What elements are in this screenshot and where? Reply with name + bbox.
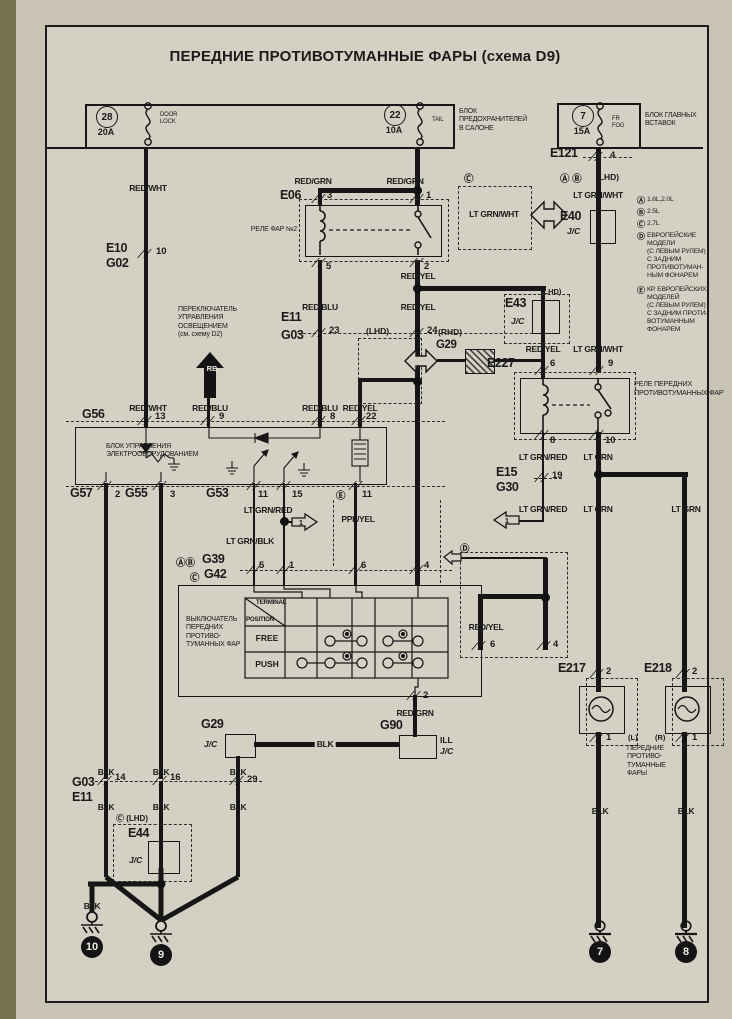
- legend-item-b: Ⓑ 2.5L: [637, 208, 709, 217]
- connector-id-g90: G90: [380, 718, 402, 732]
- main-fusebox-bottom: [557, 147, 703, 149]
- pin-e227-10: 10: [605, 435, 616, 446]
- wire-label-red-grn-3: RED/GRN: [396, 708, 433, 718]
- ground-convergence: [78, 868, 268, 978]
- wiring-diagram-page: ПЕРЕДНИЕ ПРОТИВОТУМАННЫЕ ФАРЫ (схема D9)…: [0, 0, 732, 1019]
- connector-id-g39: G39: [202, 552, 224, 566]
- fuse-22-number: 22: [384, 104, 406, 126]
- fog-lamp-left-bulb-icon: [579, 686, 623, 732]
- connector-id-g57: G57: [70, 486, 92, 500]
- rhd-double-arrow-icon: [404, 346, 438, 376]
- pin-g42-1: 1: [289, 560, 294, 571]
- connector-id-e10: E10: [106, 241, 127, 255]
- relay-e06-internals: [305, 205, 440, 255]
- wire-label-red-yel-1: RED/YEL: [401, 271, 436, 281]
- connector-id-g29-mid: G29: [436, 339, 457, 351]
- pin-g55-3: 3: [170, 489, 175, 500]
- tag-lhd-mid: (LHD): [366, 326, 389, 336]
- tag-left-lamp: (L): [628, 733, 638, 742]
- switch-row-free: FREE: [249, 633, 285, 643]
- light-switch-arrow-icon: [196, 352, 224, 398]
- wire-blk-lamp-r: [682, 732, 687, 928]
- cabin-fusebox-left: [85, 104, 87, 148]
- fog-switch-label: ВЫКЛЮЧАТЕЛЬ ПЕРЕДНИХ ПРОТИВО- ТУМАННЫХ Ф…: [186, 616, 240, 650]
- junction-lt-grn-red: [280, 517, 289, 526]
- connector-id-g03-bottom: G03: [72, 775, 94, 789]
- fog-lamp-right-bulb-icon: [665, 686, 709, 732]
- tag-lhd-e43: (LHD): [541, 287, 561, 296]
- ground-7-number: 7: [589, 941, 611, 963]
- main-fusebox-label: БЛОК ГЛАВНЫХ ВСТАВОК: [645, 112, 697, 129]
- wire-label-blk-2: BLK: [153, 767, 170, 777]
- cabin-fusebox-bottom: [47, 147, 455, 149]
- wire-label-lt-grn-red-1: LT GRN/RED: [244, 505, 292, 515]
- g90-jc-box: [399, 735, 437, 759]
- wire-label-lt-grn-red-3: LT GRN/RED: [519, 504, 567, 514]
- fuse-7-circuit: FR FOG: [612, 116, 624, 130]
- tag-d-box: Ⓓ: [460, 541, 470, 555]
- connector-id-g55: G55: [125, 486, 147, 500]
- wire-lt-grn-tee: [596, 472, 688, 477]
- connector-id-e15: E15: [496, 465, 517, 479]
- pin-e15-19: 19: [552, 470, 563, 481]
- connector-id-e227: E227: [487, 356, 515, 370]
- legend-key-b: Ⓑ: [637, 208, 645, 217]
- pin-e227-9: 9: [608, 358, 613, 369]
- fuse-28-amp: 20A: [93, 127, 119, 137]
- pin-g53-15: 15: [292, 489, 303, 500]
- wire-label-blk-4: BLK: [98, 802, 115, 812]
- junction-red-yel-e43: [413, 284, 422, 293]
- wire-lt-grn-red-corner: [516, 520, 543, 522]
- switch-table-terminal: TERMINAL: [256, 599, 286, 606]
- junction-lt-grn-tee: [594, 470, 603, 479]
- pin-g29-29: 29: [247, 774, 258, 785]
- pin-e218-2: 2: [692, 666, 697, 677]
- tag-c-lhd-e44: Ⓒ (LHD): [116, 813, 148, 824]
- wire-label-blk-8: BLK: [84, 901, 101, 911]
- wire-label-lt-grn-3: LT GRN: [671, 504, 700, 514]
- light-switch-arrow-code: RB: [202, 364, 222, 373]
- wire-label-red-wht-1: RED/WHT: [129, 183, 167, 193]
- pin-g03-14: 14: [115, 772, 126, 783]
- connector-line-g56-top: [66, 421, 445, 422]
- pin-dbox-6: 6: [490, 639, 495, 650]
- pin-g42-5: 5: [259, 560, 264, 571]
- connector-id-g42: G42: [204, 567, 226, 581]
- cabin-fusebox-right: [453, 104, 455, 148]
- wire-label-red-grn-2: RED/GRN: [386, 176, 423, 186]
- junction-red-yel-lhd: [413, 377, 422, 386]
- wire-label-blk-6: BLK: [230, 802, 247, 812]
- diagram-title: ПЕРЕДНИЕ ПРОТИВОТУМАННЫЕ ФАРЫ (схема D9): [90, 48, 640, 65]
- wire-blk-g57: [104, 483, 108, 779]
- connector-line-g39-g42: [240, 570, 452, 571]
- wire-label-lt-grn-red-2: LT GRN/RED: [519, 452, 567, 462]
- link-arrow-right-number: 1: [294, 518, 308, 527]
- pin-e121-4: 4: [610, 150, 615, 161]
- legend-item-d: Ⓓ ЕВРОПЕЙСКИЕ МОДЕЛИ (С ЛЕВЫМ РУЛЕМ) С З…: [637, 232, 709, 280]
- fuse-22-circuit: TAIL: [432, 117, 443, 124]
- pin-dbox-4: 4: [553, 639, 558, 650]
- wire-blk-g55: [159, 483, 163, 779]
- pin-e06-1: 1: [426, 190, 431, 201]
- legend-item-e: Ⓔ КР. ЕВРОПЕЙСКИХ МОДЕЛЕЙ (С ЛЕВЫМ РУЛЕМ…: [637, 286, 709, 334]
- connector-id-g56: G56: [82, 407, 104, 421]
- wire-label-lt-grn-2: LT GRN: [583, 504, 612, 514]
- relay-e227-internals: [520, 378, 628, 432]
- pin-e-11: 11: [362, 489, 372, 500]
- wire-label-lt-grn-wht-3: LT GRN/WHT: [573, 344, 623, 354]
- fuse-22-amp: 10A: [381, 125, 407, 135]
- fuse-28-number: 28: [96, 106, 118, 128]
- wire-label-lt-grn-wht-2: LT GRN/WHT: [469, 209, 519, 219]
- connector-id-g29-jc: G29: [201, 717, 223, 731]
- tag-jc-e44: J/C: [129, 855, 142, 865]
- connector-id-e218: E218: [644, 661, 672, 675]
- connector-id-e11: E11: [281, 310, 301, 324]
- wire-label-red-yel-2: RED/YEL: [401, 302, 436, 312]
- connector-id-g02: G02: [106, 256, 128, 270]
- wire-label-red-yel-4: RED/YEL: [526, 344, 561, 354]
- pin-e06-3: 3: [327, 190, 332, 201]
- legend-key-a: Ⓐ: [637, 196, 645, 205]
- tag-jc-g90: J/C: [440, 746, 453, 756]
- pin-e217-1: 1: [606, 732, 611, 743]
- wire-label-red-blu-1: RED/BLU: [302, 302, 338, 312]
- pin-e227-6: 6: [550, 358, 555, 369]
- scan-page-edge: [0, 0, 16, 1019]
- wire-label-blk-10: BLK: [678, 806, 695, 816]
- tag-right-lamp: (R): [655, 733, 665, 742]
- pin-e11-24: 24: [427, 325, 438, 336]
- junction-d-box: [541, 593, 550, 602]
- connector-id-g53: G53: [206, 486, 228, 500]
- wire-label-lt-grn-wht-1: LT GRN/WHT: [573, 190, 623, 200]
- light-switch-note: ПЕРЕКЛЮЧАТЕЛЬ УПРАВЛЕНИЯ ОСВЕЩЕНИЕМ (см.…: [178, 306, 237, 340]
- fuse-7-icon: [591, 100, 609, 148]
- wire-label-blk-7: BLK: [315, 739, 336, 749]
- pin-e227-8: 8: [550, 435, 555, 446]
- legend-key-d: Ⓓ: [637, 232, 645, 241]
- ground-8-number: 8: [675, 941, 697, 963]
- connector-id-e43: E43: [505, 296, 526, 310]
- cabin-fusebox-label: БЛОК ПРЕДОХРАНИТЕЛЕЙ В САЛОНЕ: [459, 108, 527, 133]
- wire-red-yel-to-e43: [418, 286, 546, 291]
- wire-label-lt-grn-1: LT GRN: [583, 452, 612, 462]
- wire-label-lt-grn-blk: LT GRN/BLK: [226, 536, 274, 546]
- pin-e10-10: 10: [156, 246, 167, 257]
- connector-id-e40: E40: [560, 209, 581, 223]
- pin-g56-22: 22: [366, 411, 377, 422]
- variant-dash-e-left: [333, 500, 334, 566]
- pin-e217-2: 2: [606, 666, 611, 677]
- wire-label-ppl-yel: PPL/YEL: [341, 514, 374, 524]
- pin-e06-2: 2: [424, 261, 429, 272]
- tag-c-box: Ⓒ: [464, 171, 474, 185]
- pin-g56-9: 9: [219, 411, 224, 422]
- tag-rhd: (RHD): [438, 327, 462, 337]
- e40-jc-box: [590, 210, 616, 244]
- wire-red-grn-branch: [318, 188, 420, 193]
- link-arrow-left-number: 1: [500, 516, 514, 525]
- legend-item-a: Ⓐ 1.6L,2.0L: [637, 196, 709, 205]
- wire-rhd-left: [437, 359, 465, 362]
- pin-g03-16: 16: [170, 772, 181, 783]
- legend-text-d: ЕВРОПЕЙСКИЕ МОДЕЛИ (С ЛЕВЫМ РУЛЕМ) С ЗАД…: [647, 232, 706, 280]
- switch-table-position: POSITION: [246, 616, 274, 623]
- variant-dash-d-link: [440, 500, 441, 583]
- tag-jc-e43: J/C: [511, 316, 524, 326]
- legend-text-b: 2.5L: [647, 208, 659, 216]
- connector-id-e217: E217: [558, 661, 586, 675]
- tag-ab-e121: Ⓐ Ⓑ: [560, 171, 582, 185]
- relay-e227-name: РЕЛЕ ПЕРЕДНИХ ПРОТИВОТУМАННЫХ ФАР: [634, 380, 729, 397]
- g29-jc-box: [225, 734, 256, 758]
- tag-jc-g29: J/C: [204, 739, 217, 749]
- connector-id-g03-top: G03: [281, 328, 303, 342]
- pin-g53-11: 11: [258, 489, 268, 500]
- fuse-28-circuit: DOOR LOCK: [160, 112, 177, 126]
- ground-9-number: 9: [150, 944, 172, 966]
- connector-id-e44: E44: [128, 826, 149, 840]
- legend-key-c: Ⓒ: [637, 220, 645, 229]
- pin-e06-5: 5: [326, 261, 331, 272]
- e43-jc-box: [532, 300, 560, 334]
- control-unit-label: БЛОК УПРАВЛЕНИЯ ЭЛЕКТРООБОРУДОВАНИЕМ: [106, 443, 198, 460]
- pin-e218-1: 1: [692, 732, 697, 743]
- main-fusebox-left: [557, 103, 559, 147]
- legend-text-a: 1.6L,2.0L: [647, 196, 674, 204]
- pin-g56-13: 13: [155, 411, 166, 422]
- wire-label-blk-9: BLK: [592, 806, 609, 816]
- wire-blk-lamp-l: [596, 732, 601, 928]
- legend-item-c: Ⓒ 2.7L: [637, 220, 709, 229]
- connector-id-e11-bottom: E11: [72, 790, 92, 804]
- wire-label-blk-3: BLK: [230, 767, 247, 777]
- legend-text-c: 2.7L: [647, 220, 659, 228]
- wire-label-blk-1: BLK: [98, 767, 115, 777]
- ground-10-number: 10: [81, 936, 103, 958]
- connector-id-e06: E06: [280, 188, 301, 202]
- main-fusebox-right: [639, 103, 641, 147]
- tag-lhd-e121: (LHD): [596, 172, 619, 182]
- pin-g56-8: 8: [330, 411, 335, 422]
- tag-ill-g90: ILL: [440, 735, 453, 745]
- pin-switch-2: 2: [423, 690, 428, 701]
- wire-label-red-grn-1: RED/GRN: [294, 176, 331, 186]
- tag-ab-g39: ⒶⒷ: [176, 555, 195, 569]
- connector-id-g30: G30: [496, 480, 518, 494]
- pin-e11-23: 23: [329, 325, 340, 336]
- relay-e06-name: РЕЛЕ ФАР №2: [195, 226, 297, 234]
- tag-jc-e40: J/C: [567, 226, 580, 236]
- fuse-28-icon: [139, 100, 157, 148]
- fog-lamps-label: ПЕРЕДНИЕ ПРОТИВО- ТУМАННЫЕ ФАРЫ: [627, 745, 666, 779]
- connector-id-e121: E121: [550, 146, 578, 160]
- pin-g42-6: 6: [361, 560, 366, 571]
- legend-text-e: КР. ЕВРОПЕЙСКИХ МОДЕЛЕЙ (С ЛЕВЫМ РУЛЕМ) …: [647, 286, 707, 334]
- switch-row-push: PUSH: [249, 659, 285, 669]
- tag-e-pin: Ⓔ: [336, 488, 346, 502]
- legend-key-e: Ⓔ: [637, 286, 645, 295]
- fuse-22-icon: [411, 100, 429, 148]
- wire-label-red-yel-5: RED/YEL: [469, 622, 504, 632]
- wire-label-blk-5: BLK: [153, 802, 170, 812]
- wire-blk-14-low: [104, 781, 108, 877]
- pin-g42-4: 4: [424, 560, 429, 571]
- pin-g57-2: 2: [115, 489, 120, 500]
- tag-c-g42: Ⓒ: [190, 570, 200, 584]
